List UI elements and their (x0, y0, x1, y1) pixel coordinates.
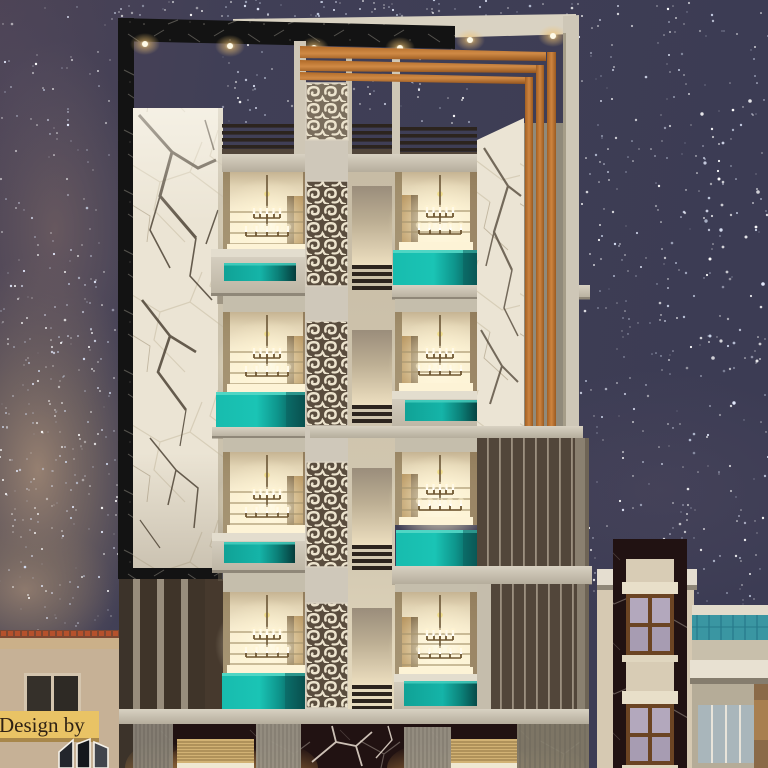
svg-text:Design by: Design by (0, 713, 85, 737)
